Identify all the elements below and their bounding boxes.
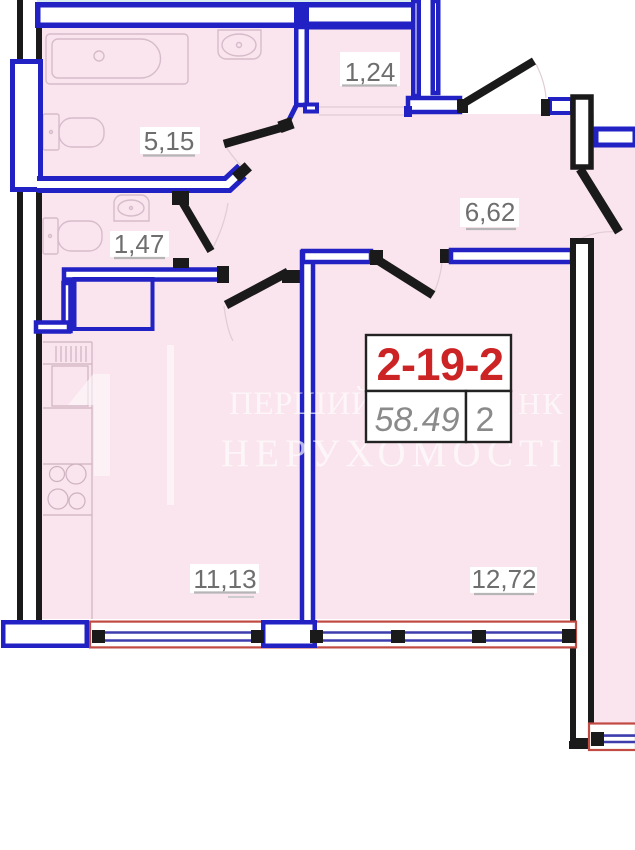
- svg-text:12,72: 12,72: [471, 564, 536, 594]
- svg-text:1,24: 1,24: [345, 57, 396, 87]
- svg-text:11,13: 11,13: [193, 564, 256, 594]
- svg-text:2: 2: [476, 401, 495, 439]
- svg-text:ПЕРШИЙ: ПЕРШИЙ: [229, 385, 375, 422]
- svg-text:5,15: 5,15: [144, 126, 195, 156]
- svg-text:2-19-2: 2-19-2: [376, 339, 503, 390]
- svg-text:58.49: 58.49: [374, 401, 459, 439]
- svg-text:1,47: 1,47: [114, 229, 165, 259]
- svg-text:6,62: 6,62: [465, 197, 516, 227]
- svg-text:НК: НК: [518, 386, 565, 421]
